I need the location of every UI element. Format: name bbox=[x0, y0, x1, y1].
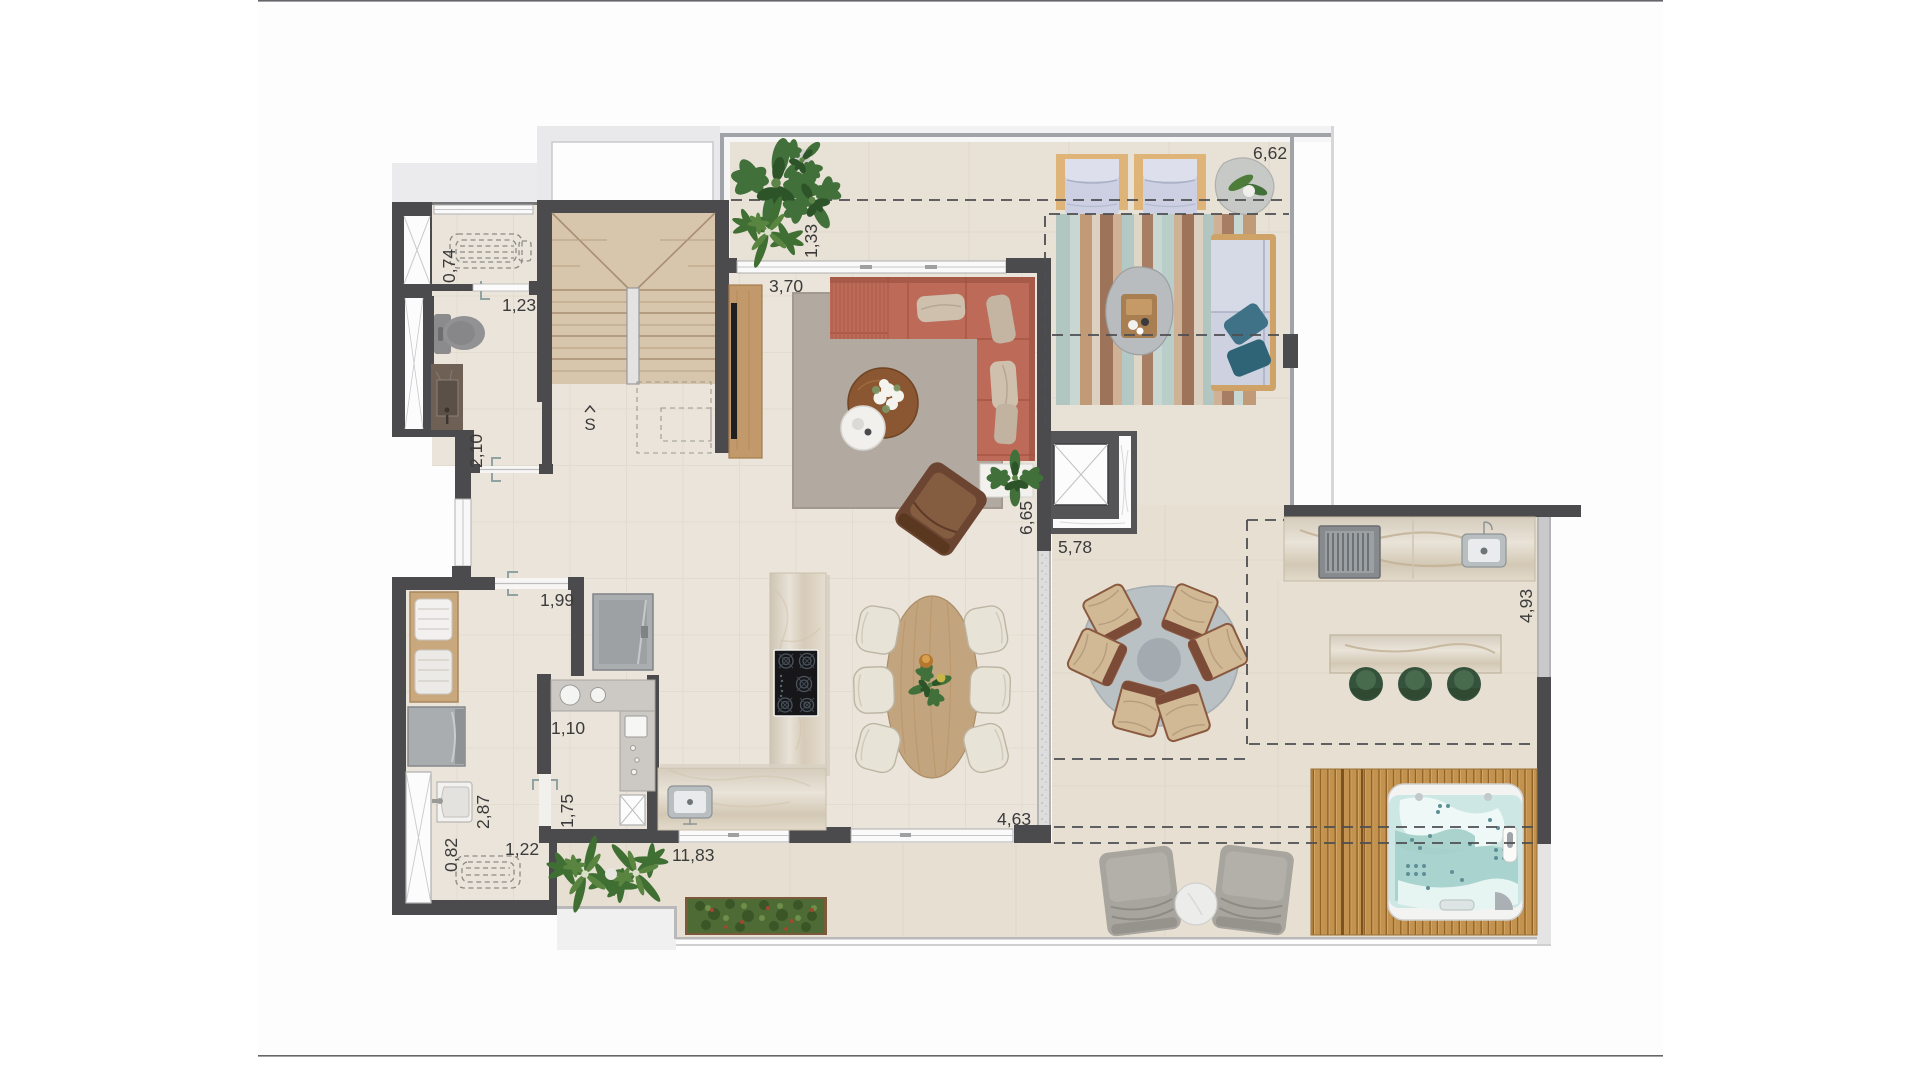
svg-text:4,93: 4,93 bbox=[1516, 589, 1536, 623]
svg-text:1,75: 1,75 bbox=[557, 794, 577, 828]
svg-text:S: S bbox=[584, 415, 595, 434]
svg-text:1,33: 1,33 bbox=[801, 224, 821, 258]
svg-text:11,83: 11,83 bbox=[672, 845, 715, 865]
svg-text:1,10: 1,10 bbox=[551, 718, 585, 738]
svg-text:1,99: 1,99 bbox=[540, 590, 574, 610]
svg-text:5,78: 5,78 bbox=[1058, 537, 1092, 557]
svg-text:6,65: 6,65 bbox=[1016, 501, 1036, 535]
svg-text:4,63: 4,63 bbox=[997, 809, 1031, 829]
svg-text:2,87: 2,87 bbox=[473, 795, 493, 829]
svg-text:1,23: 1,23 bbox=[502, 295, 536, 315]
svg-text:3,70: 3,70 bbox=[769, 276, 803, 296]
svg-text:1,22: 1,22 bbox=[505, 839, 539, 859]
svg-text:2,10: 2,10 bbox=[466, 434, 486, 468]
svg-text:0,74: 0,74 bbox=[439, 249, 459, 283]
svg-text:6,62: 6,62 bbox=[1253, 143, 1287, 163]
svg-text:0,82: 0,82 bbox=[441, 838, 461, 872]
